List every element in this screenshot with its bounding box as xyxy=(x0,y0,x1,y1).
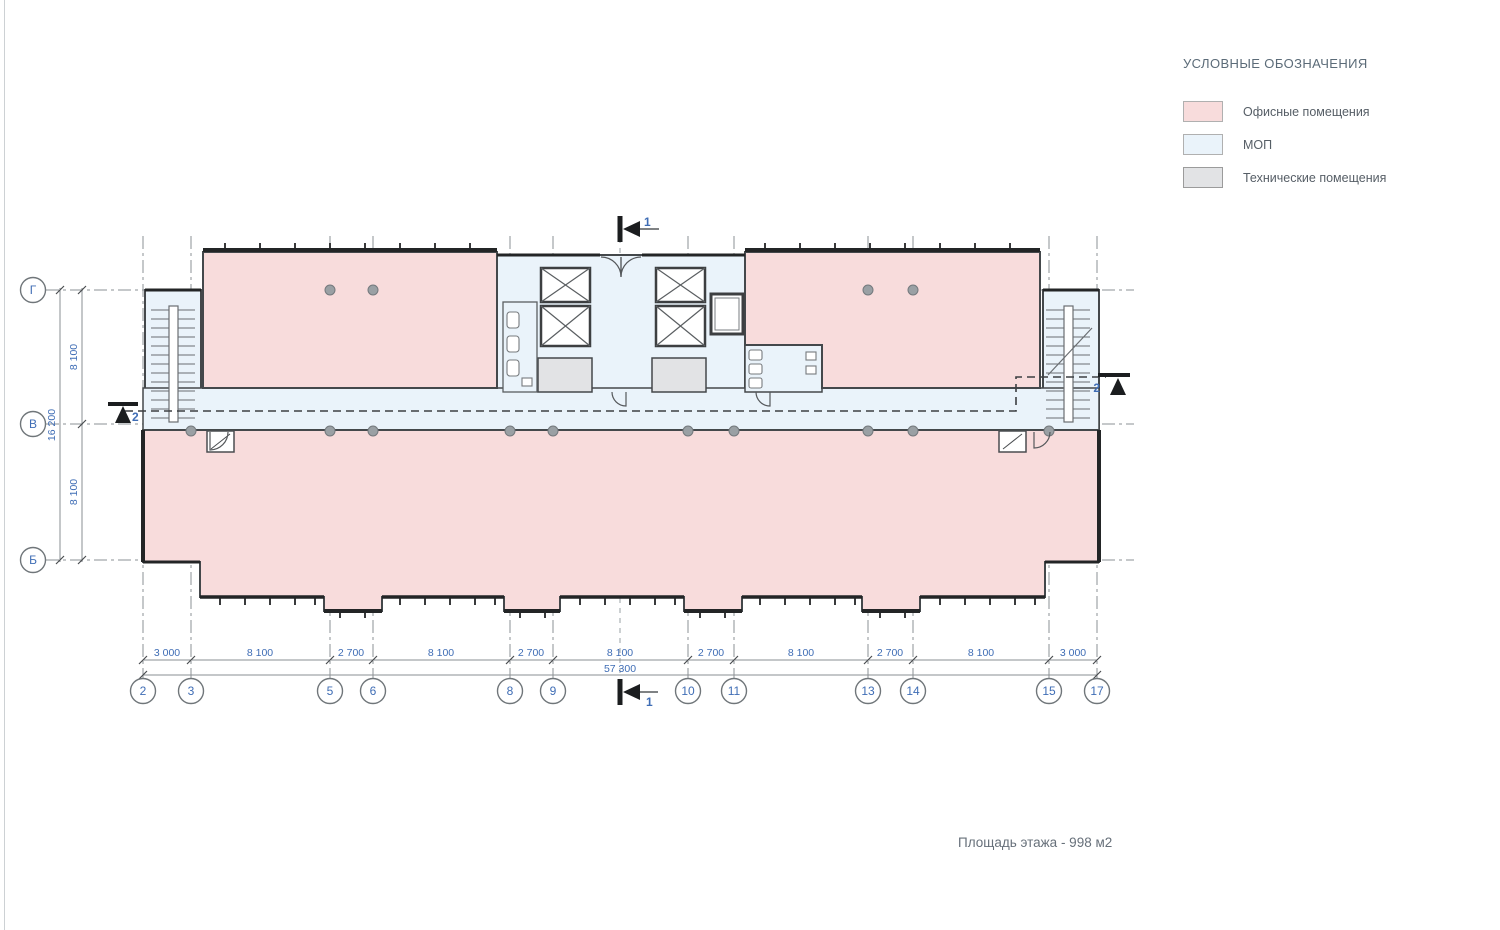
dim-label: 3 000 xyxy=(1060,647,1086,659)
dim-label: 8 100 xyxy=(247,647,273,659)
legend-label-offices: Офисные помещения xyxy=(1243,105,1370,119)
dim-label: 8 100 xyxy=(788,647,814,659)
dim-label: 2 700 xyxy=(338,647,364,659)
legend-item-technical: Технические помещения xyxy=(1183,167,1386,188)
legend-item-mop: МОП xyxy=(1183,134,1386,155)
legend: УСЛОВНЫЕ ОБОЗНАЧЕНИЯ Офисные помещения М… xyxy=(1183,56,1386,200)
section-marker-bottom: 1 xyxy=(620,679,658,709)
section-label: 1 xyxy=(646,695,653,709)
dim-label: 8 100 xyxy=(428,647,454,659)
dim-label: 8 100 xyxy=(968,647,994,659)
dim-total-label: 57 300 xyxy=(604,663,636,675)
legend-swatch-offices xyxy=(1183,101,1223,122)
area-tech-room-right xyxy=(652,358,706,392)
dim-total-label: 16 200 xyxy=(46,409,58,441)
legend-label-mop: МОП xyxy=(1243,138,1272,152)
area-office-bottom xyxy=(143,430,1099,611)
area-corridor xyxy=(143,388,1099,432)
area-office-top-left xyxy=(203,252,497,388)
grid-bubble-label: 17 xyxy=(1090,684,1104,698)
legend-item-offices: Офисные помещения xyxy=(1183,101,1386,122)
dim-label: 8 100 xyxy=(607,647,633,659)
left-dimension-lines xyxy=(60,288,82,562)
grid-bubble-label: Б xyxy=(29,553,37,567)
dim-label: 8 100 xyxy=(68,479,80,505)
wc-left-room xyxy=(503,302,537,392)
page: 3 000 8 100 2 700 8 100 2 700 8 100 2 70… xyxy=(0,0,1500,930)
floor-area-note: Площадь этажа - 998 м2 xyxy=(958,835,1112,850)
section-label: 1 xyxy=(644,215,651,229)
dim-label: 2 700 xyxy=(518,647,544,659)
grid-bubbles-left: Г В Б xyxy=(21,278,46,573)
legend-swatch-technical xyxy=(1183,167,1223,188)
dim-label: 8 100 xyxy=(68,344,80,370)
grid-bubble-label: 2 xyxy=(140,684,147,698)
section-marker-left: 2 xyxy=(108,404,139,424)
section-label: 2 xyxy=(132,410,139,424)
area-tech-room-left xyxy=(538,358,592,392)
grid-bubble-label: 9 xyxy=(550,684,557,698)
grid-bubble-label: 6 xyxy=(370,684,377,698)
grid-bubble-label: В xyxy=(29,417,37,431)
dim-label: 2 700 xyxy=(877,647,903,659)
legend-swatch-mop xyxy=(1183,134,1223,155)
legend-label-technical: Технические помещения xyxy=(1243,171,1386,185)
grid-bubble-label: Г xyxy=(30,283,37,297)
grid-bubble-label: 14 xyxy=(906,684,920,698)
dim-label: 3 000 xyxy=(154,647,180,659)
legend-title: УСЛОВНЫЕ ОБОЗНАЧЕНИЯ xyxy=(1183,56,1386,71)
building-areas xyxy=(143,252,1099,611)
grid-bubble-label: 8 xyxy=(507,684,514,698)
section-marker-top: 1 xyxy=(620,215,659,242)
grid-bubble-label: 3 xyxy=(188,684,195,698)
dim-label: 2 700 xyxy=(698,647,724,659)
grid-bubble-label: 15 xyxy=(1042,684,1056,698)
grid-bubble-label: 13 xyxy=(861,684,875,698)
grid-bubble-label: 11 xyxy=(728,684,741,698)
grid-bubble-label: 10 xyxy=(681,684,695,698)
service-elevator xyxy=(711,294,743,334)
section-label: 2 xyxy=(1093,381,1100,395)
grid-bubble-label: 5 xyxy=(327,684,334,698)
